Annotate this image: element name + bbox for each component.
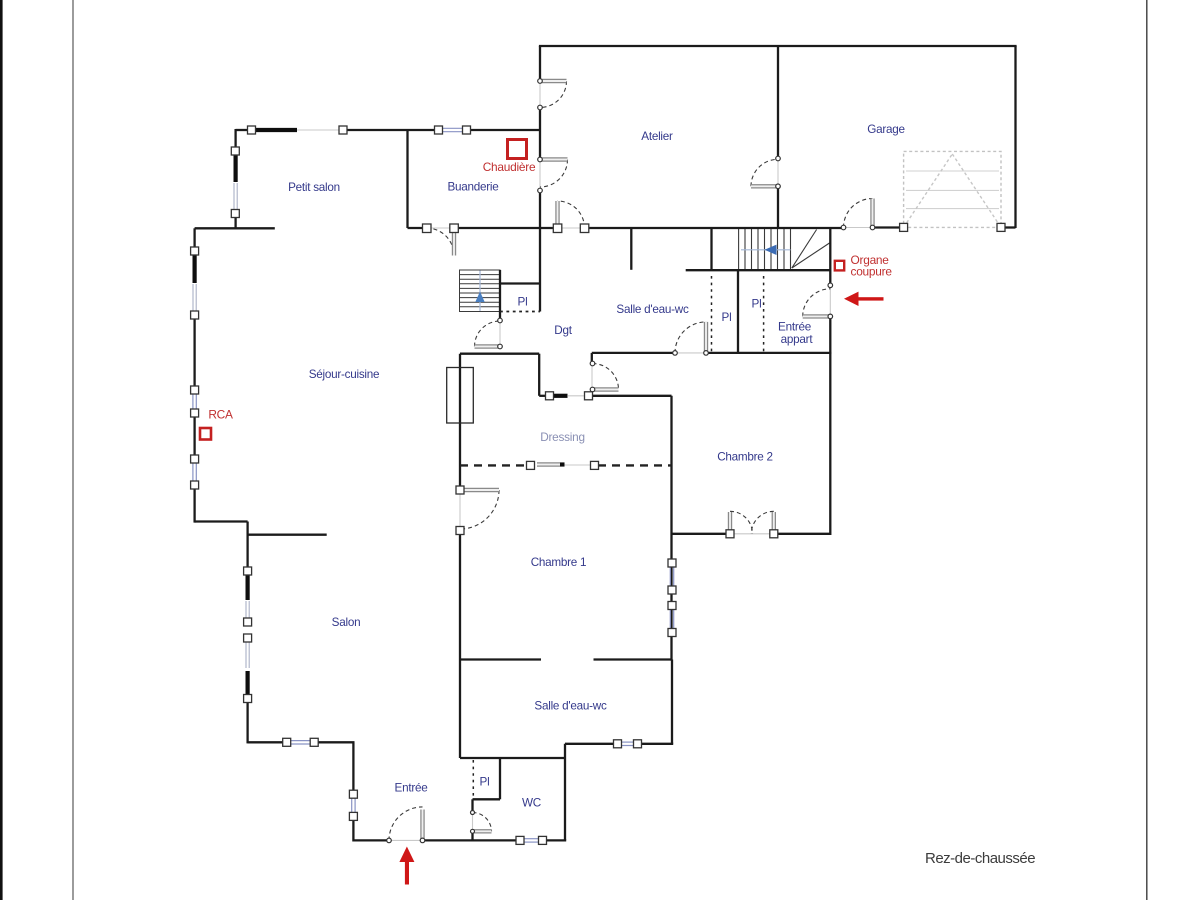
- svg-text:WC: WC: [522, 797, 541, 810]
- svg-text:Pl: Pl: [752, 298, 762, 311]
- svg-text:Atelier: Atelier: [641, 130, 673, 143]
- svg-text:Séjour-cuisine: Séjour-cuisine: [309, 368, 380, 381]
- svg-text:coupure: coupure: [851, 265, 893, 279]
- svg-text:Buanderie: Buanderie: [447, 181, 498, 194]
- svg-text:Pl: Pl: [722, 311, 732, 324]
- svg-text:Entrée: Entrée: [778, 321, 811, 334]
- svg-text:Salon: Salon: [332, 616, 361, 629]
- svg-text:Petit salon: Petit salon: [288, 181, 340, 194]
- svg-text:RCA: RCA: [208, 408, 233, 422]
- svg-text:Pl: Pl: [480, 776, 490, 789]
- svg-text:Entrée: Entrée: [395, 782, 428, 795]
- svg-text:Garage: Garage: [867, 123, 904, 136]
- svg-text:Chaudière: Chaudière: [483, 160, 536, 174]
- svg-text:Rez-de-chaussée: Rez-de-chaussée: [925, 850, 1035, 867]
- svg-text:Chambre 1: Chambre 1: [531, 556, 587, 569]
- svg-text:Salle d'eau-wc: Salle d'eau-wc: [616, 303, 689, 316]
- svg-text:Pl: Pl: [518, 296, 528, 309]
- svg-text:appart: appart: [781, 333, 814, 346]
- svg-text:Dgt: Dgt: [554, 324, 572, 337]
- svg-text:Salle d'eau-wc: Salle d'eau-wc: [534, 700, 607, 713]
- svg-text:Dressing: Dressing: [540, 430, 585, 444]
- svg-text:Chambre 2: Chambre 2: [717, 451, 773, 464]
